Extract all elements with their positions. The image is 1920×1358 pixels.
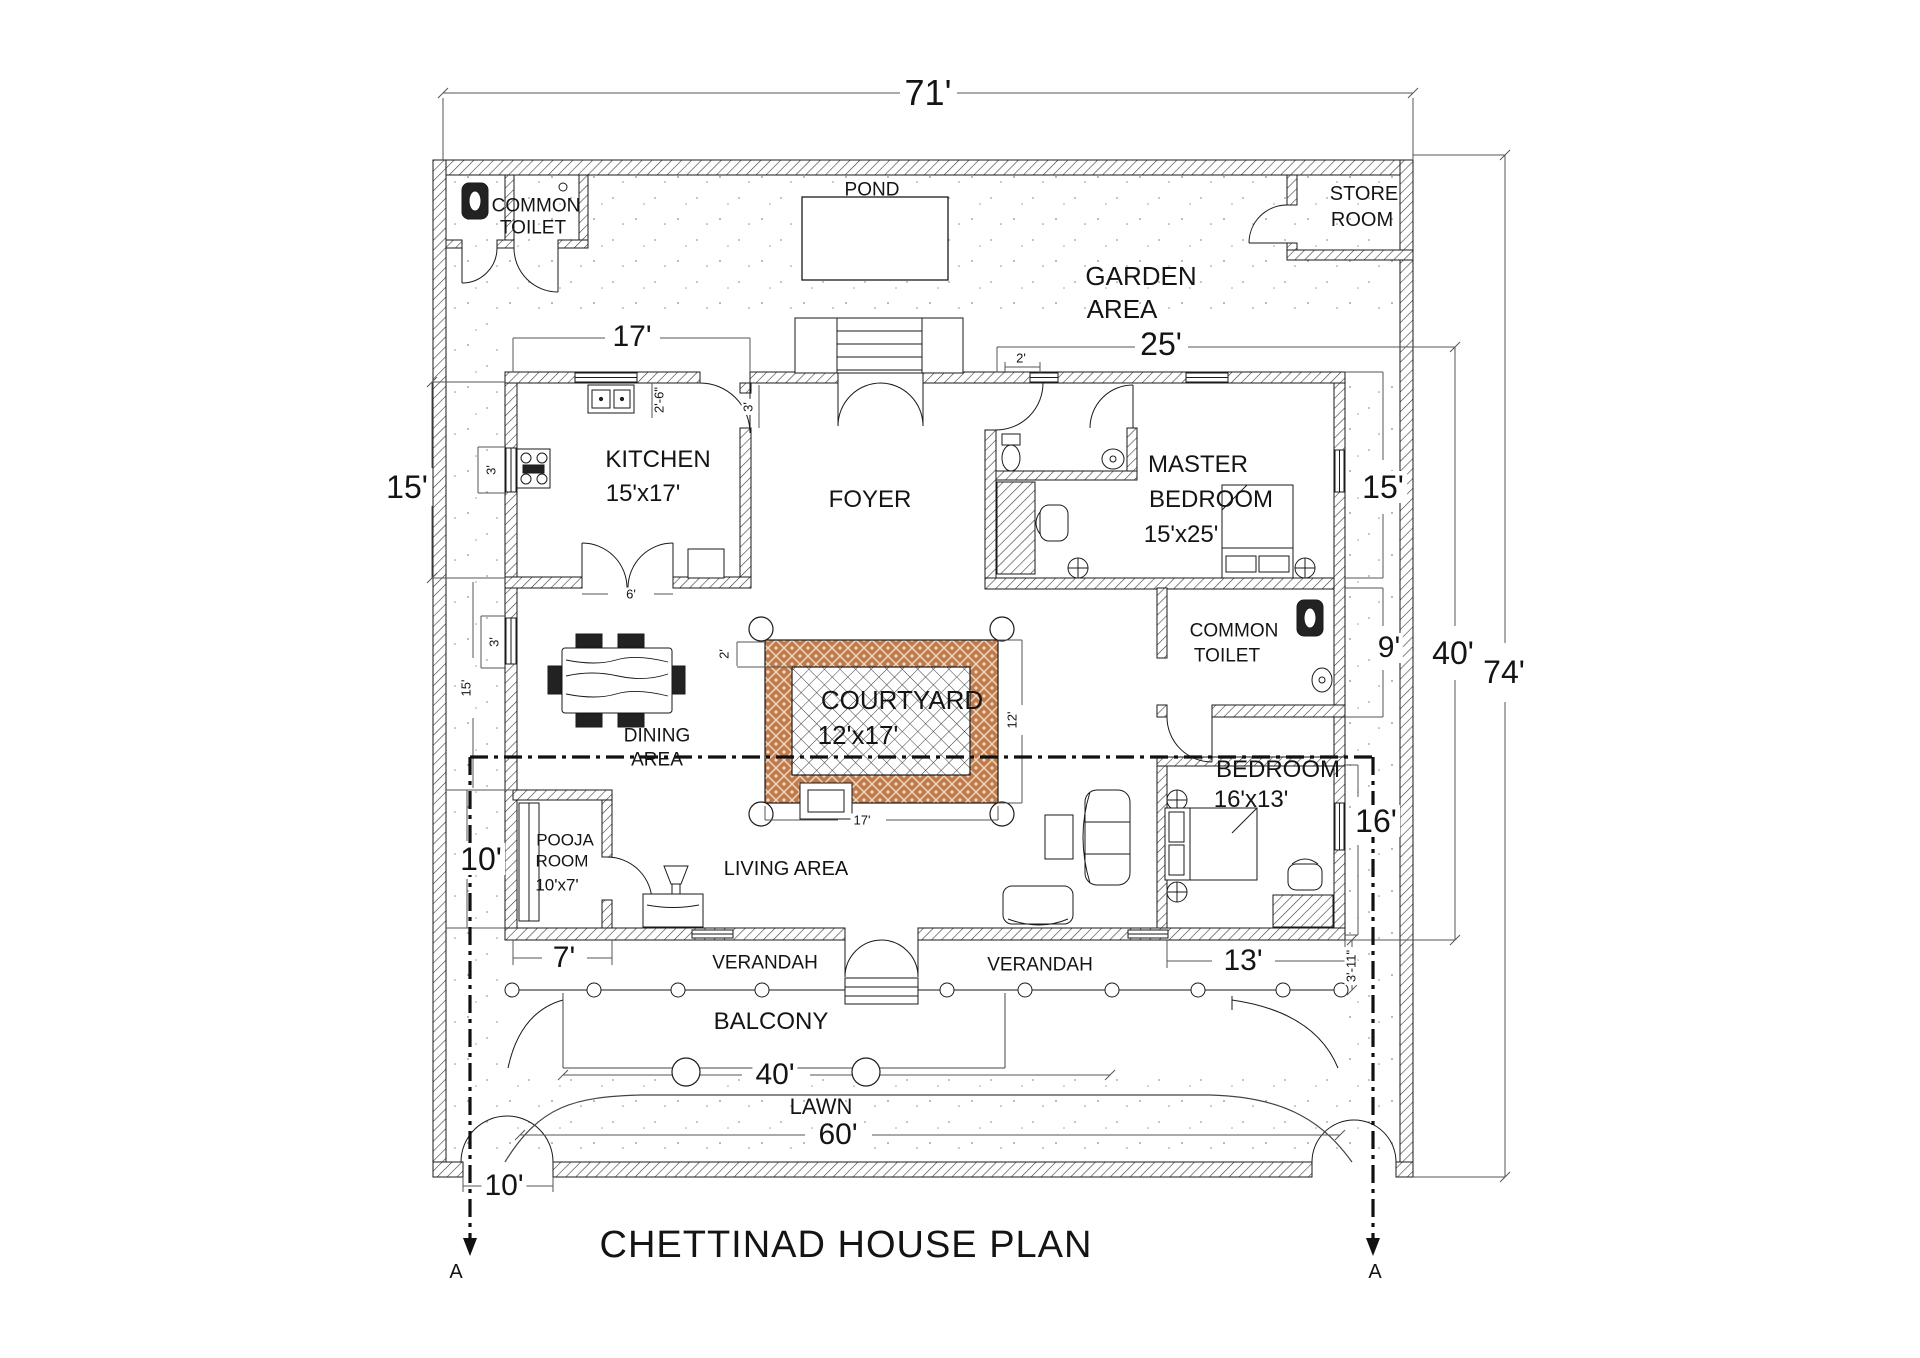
- kitchen-label: KITCHEN: [605, 448, 710, 472]
- bedroom-size-label: 16'x13': [1214, 788, 1289, 812]
- dresser-icon: [997, 482, 1035, 574]
- western-toilet-icon: [1002, 434, 1020, 471]
- dim-7ft-bottom: 7': [550, 943, 578, 973]
- dim-74ft-right: 74': [1480, 656, 1528, 688]
- dim-12ft-courtyard: 12': [1006, 709, 1019, 732]
- dining-table-icon: [548, 634, 685, 727]
- dim-17ft-top: 17': [609, 322, 654, 352]
- pooja-room-size-label: 10'x7': [535, 877, 578, 894]
- section-marker-a-right: A: [1368, 1262, 1381, 1282]
- garden-area-label-2: AREA: [1087, 296, 1158, 322]
- stove-icon: [517, 449, 550, 488]
- dim-2ft6in-sink: 2'-6": [653, 384, 666, 416]
- dining-area-label-2: AREA: [631, 751, 683, 770]
- verandah-right-label: VERANDAH: [987, 956, 1093, 975]
- dim-3ft-stove-window: 3': [485, 462, 498, 478]
- chair-icon: [1036, 505, 1068, 541]
- living-area-label: LIVING AREA: [724, 859, 849, 879]
- sofa-icon: [1083, 790, 1130, 885]
- common-toilet-top-label-2: TOILET: [500, 219, 566, 238]
- armchair-icon: [1003, 886, 1073, 925]
- dim-10ft-left: 10': [457, 843, 505, 875]
- dim-2ft-courtyard: 2': [718, 646, 731, 662]
- plan-linework: [0, 0, 1920, 1358]
- dim-25ft-top: 25': [1137, 328, 1185, 360]
- stairs-icon: [795, 318, 963, 373]
- bedroom-label: BEDROOM: [1216, 758, 1340, 782]
- table-lamp-icon: [643, 866, 703, 927]
- courtyard-size-label: 12'x17': [818, 722, 899, 748]
- wash-basin-icon: [1102, 449, 1124, 469]
- store-room-label-1: STORE: [1330, 184, 1399, 204]
- master-bedroom-label-1: MASTER: [1148, 453, 1248, 477]
- dim-13ft-bottom: 13': [1220, 946, 1265, 976]
- dim-17ft-courtyard: 17': [851, 814, 874, 827]
- garden-area-label-1: GARDEN: [1085, 263, 1196, 289]
- steps-icon: [845, 978, 918, 1004]
- pooja-room-label-1: POOJA: [536, 832, 594, 849]
- dim-15ft-inner: 15': [460, 677, 473, 700]
- double-bed-icon: [1165, 808, 1257, 880]
- dim-40ft-right: 40': [1429, 637, 1477, 669]
- dim-15ft-left: 15': [383, 471, 431, 503]
- chair-icon: [1288, 859, 1322, 890]
- squat-toilet-icon: [1297, 600, 1323, 636]
- pond-icon: [802, 197, 948, 280]
- common-toilet-mid-label-2: TOILET: [1194, 647, 1260, 666]
- dim-3ft-kitchen-door: 3': [742, 399, 755, 415]
- pooja-room-label-2: ROOM: [536, 853, 589, 870]
- dim-2ft-window: 2': [1013, 352, 1029, 365]
- section-marker-a-left: A: [449, 1262, 462, 1282]
- master-bedroom-size-label: 15'x25': [1144, 523, 1219, 547]
- dim-16ft-right: 16': [1352, 805, 1400, 837]
- dim-3ft-dining-window: 3': [488, 634, 501, 650]
- dim-6ft-kitchen-door: 6': [623, 588, 639, 601]
- low-table-icon: [800, 783, 852, 819]
- kitchen-size-label: 15'x17': [606, 482, 681, 506]
- dim-15ft-right: 15': [1359, 471, 1407, 503]
- dim-10ft-gate: 10': [481, 1171, 526, 1201]
- courtyard-label: COURTYARD: [821, 687, 983, 713]
- master-bedroom-label-2: BEDROOM: [1149, 488, 1273, 512]
- refrigerator-icon: [688, 549, 724, 578]
- dresser-icon: [1273, 895, 1333, 927]
- dim-3ft11in-verandah: 3'-11": [1345, 947, 1358, 985]
- foyer-label: FOYER: [829, 488, 912, 512]
- verandah-colonnade: [505, 983, 1348, 997]
- store-room-label-2: ROOM: [1331, 210, 1393, 230]
- pond-label: POND: [845, 181, 900, 200]
- kitchen-sink-icon: [588, 385, 634, 413]
- dim-60ft-lawn: 60': [815, 1120, 860, 1150]
- floor-plan-canvas: 71' POND COMMON TOILET STORE ROOM GARDEN…: [0, 0, 1920, 1358]
- common-toilet-top-label-1: COMMON: [492, 197, 581, 216]
- verandah-left-label: VERANDAH: [712, 954, 818, 973]
- dining-area-label-1: DINING: [624, 727, 691, 746]
- dim-40ft-balcony: 40': [752, 1060, 797, 1090]
- dim-71ft: 71': [905, 75, 952, 111]
- lawn-label: LAWN: [790, 1096, 853, 1118]
- plan-title: CHETTINAD HOUSE PLAN: [600, 1226, 1093, 1264]
- coffee-table-icon: [1045, 815, 1073, 859]
- dim-9ft-right: 9': [1375, 633, 1403, 663]
- balcony-label: BALCONY: [714, 1010, 829, 1034]
- common-toilet-mid-label-1: COMMON: [1190, 622, 1279, 641]
- wash-basin-icon: [1312, 668, 1332, 692]
